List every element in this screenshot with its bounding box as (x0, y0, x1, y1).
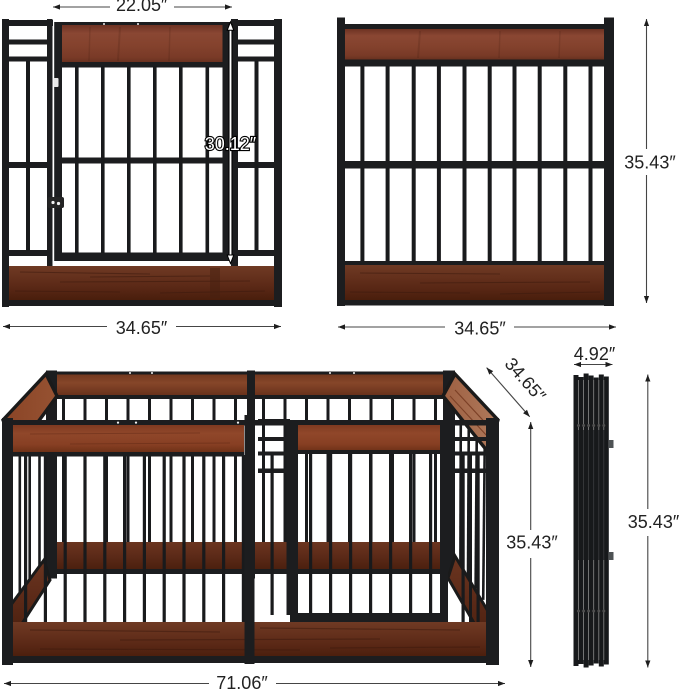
svg-text:30.12″: 30.12″ (205, 134, 257, 154)
svg-text:22.05″: 22.05″ (116, 0, 168, 15)
svg-text:35.43″: 35.43″ (506, 533, 558, 553)
svg-text:34.65″: 34.65″ (454, 319, 506, 339)
svg-text:35.43″: 35.43″ (628, 512, 679, 532)
svg-text:71.06″: 71.06″ (216, 673, 268, 693)
svg-text:4.92″: 4.92″ (574, 344, 616, 364)
svg-text:35.43″: 35.43″ (624, 153, 676, 173)
svg-text:34.65″: 34.65″ (116, 318, 168, 338)
